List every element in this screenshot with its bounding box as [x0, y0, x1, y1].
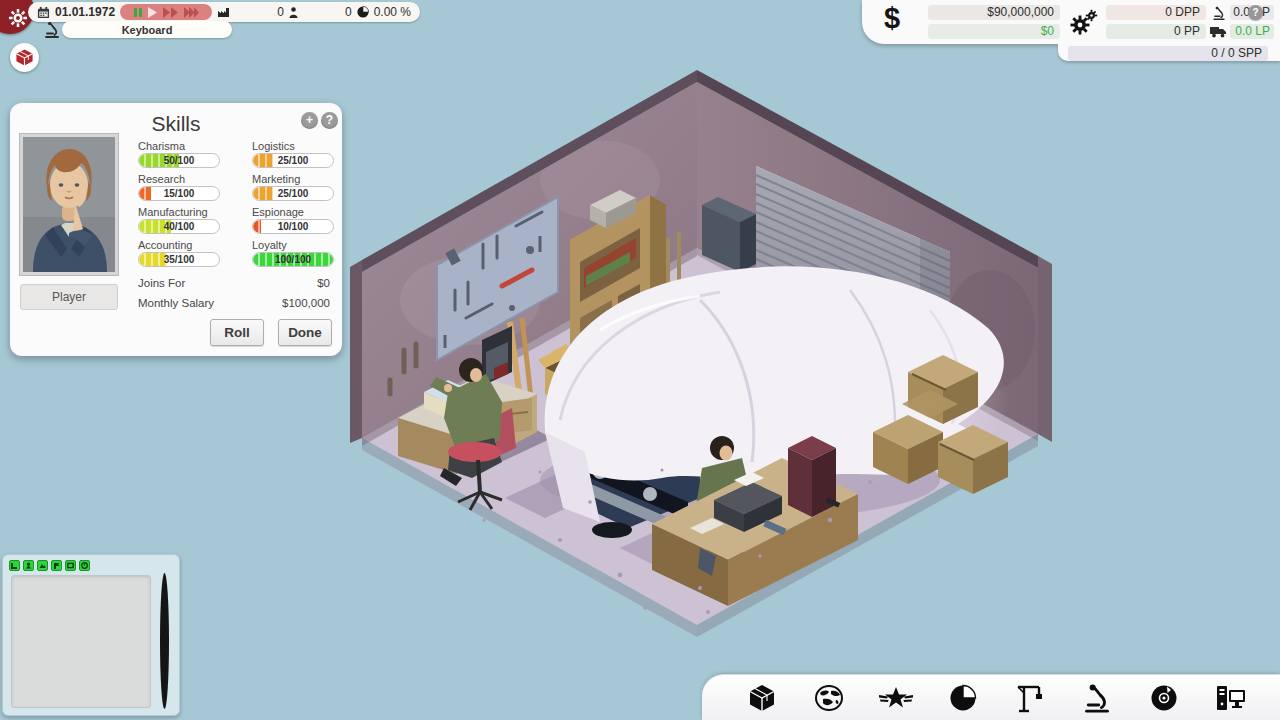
top-status-bar: 01.01.1972 0 0 0.00 % [28, 2, 420, 22]
skill-name-label: Manufacturing [138, 206, 242, 218]
products-box-icon [747, 683, 777, 713]
spp-panel: 0 / 0 SPP [1058, 44, 1280, 61]
skill-name-label: Research [138, 173, 242, 185]
toolbar-world-button[interactable] [812, 682, 846, 714]
skill-name-label: Marketing [252, 173, 356, 185]
skills-title: Skills [10, 112, 342, 136]
skill-espionage: Espionage10/100 [252, 206, 356, 234]
minimap-layer-button-4[interactable] [51, 560, 62, 571]
skill-value-text: 10/100 [253, 220, 333, 234]
skill-name-label: Logistics [252, 140, 356, 152]
skill-progress-bar: 15/100 [138, 186, 220, 201]
skill-progress-bar: 35/100 [138, 252, 220, 267]
skill-research: Research15/100 [138, 173, 242, 201]
pie-icon [357, 6, 369, 18]
portrait-art [23, 137, 115, 272]
hardware-computer-icon [1215, 684, 1247, 712]
skill-value-text: 40/100 [139, 220, 219, 234]
toolbar-software-button[interactable] [1147, 682, 1181, 714]
market-pie-icon [949, 684, 977, 712]
research-points-icon [1212, 6, 1226, 20]
minimap-layer-button-1[interactable] [9, 560, 20, 571]
skill-progress-bar: 40/100 [138, 219, 220, 234]
skill-marketing: Marketing25/100 [252, 173, 356, 201]
gear-icon [9, 9, 27, 27]
lp-field: 0.0 LP [1230, 24, 1274, 39]
microscope-icon [44, 21, 60, 38]
toolbar-market-button[interactable] [946, 682, 980, 714]
skill-value-text: 15/100 [139, 187, 219, 201]
bottom-toolbar [702, 674, 1280, 720]
person-icon [289, 7, 298, 18]
skill-loyalty: Loyalty100/100 [252, 239, 356, 267]
done-button[interactable]: Done [278, 319, 332, 346]
character-portrait [20, 134, 118, 275]
toolbar-construction-button[interactable] [1013, 682, 1047, 714]
help-button[interactable]: ? [1248, 5, 1263, 20]
joins-for-value: $0 [317, 277, 330, 289]
production-gears-icon[interactable] [1068, 9, 1098, 37]
minimap-panel [2, 554, 180, 716]
skills-help-button[interactable]: ? [321, 112, 338, 129]
red-crate-icon [15, 48, 34, 67]
current-research-label: Keyboard [122, 24, 173, 36]
toolbar-hardware-button[interactable] [1214, 682, 1248, 714]
toolbar-achievements-button[interactable] [879, 682, 913, 714]
skill-value-text: 50/100 [139, 154, 219, 168]
minimap-layer-button-5[interactable] [65, 560, 76, 571]
counter-population: 0 [345, 5, 352, 19]
salary-label: Monthly Salary [138, 297, 214, 309]
skill-progress-bar: 10/100 [252, 219, 334, 234]
skill-value-text: 25/100 [253, 154, 333, 168]
skill-manufacturing: Manufacturing40/100 [138, 206, 242, 234]
game-screen: 01.01.1972 0 0 0.00 % Keyboard [0, 0, 1280, 720]
minimap-viewport[interactable] [11, 575, 151, 708]
skill-accounting: Accounting35/100 [138, 239, 242, 267]
factory-icon [217, 6, 230, 18]
skill-charisma: Charisma50/100 [138, 140, 242, 168]
dpp-field: 0 DPP [1106, 5, 1206, 20]
skill-name-label: Charisma [138, 140, 242, 152]
joins-for-label: Joins For [138, 277, 185, 289]
pause-button[interactable] [134, 8, 142, 17]
skill-value-text: 100/100 [253, 253, 333, 267]
minimap-layer-button-6[interactable] [79, 560, 90, 571]
software-disc-icon [1150, 684, 1178, 712]
counter-industry: 0 [277, 5, 284, 19]
skills-dialog: Skills + ? [10, 103, 342, 356]
minimap-layer-button-2[interactable] [23, 560, 34, 571]
player-button[interactable]: Player [20, 284, 118, 310]
skill-value-text: 25/100 [253, 187, 333, 201]
speed-controls [120, 4, 212, 20]
skill-progress-bar: 25/100 [252, 186, 334, 201]
skill-progress-bar: 25/100 [252, 153, 334, 168]
calendar-icon [37, 6, 50, 19]
game-date: 01.01.1972 [55, 5, 115, 19]
skill-progress-bar: 100/100 [252, 252, 334, 267]
resources-panel: $ $90,000,000 $0 0 DPP 0 PP [862, 0, 1280, 44]
toolbar-research-button[interactable] [1080, 682, 1114, 714]
skills-grid: Charisma50/100Logistics25/100Research15/… [138, 140, 358, 267]
salary-value: $100,000 [282, 297, 330, 309]
skill-progress-bar: 50/100 [138, 153, 220, 168]
research-microscope-icon [1083, 683, 1111, 713]
skill-name-label: Loyalty [252, 239, 356, 251]
counter-market-share: 0.00 % [374, 5, 411, 19]
roll-button[interactable]: Roll [210, 319, 264, 346]
fastest-forward-button[interactable] [184, 7, 199, 18]
pp-field: 0 PP [1106, 24, 1206, 39]
spp-field: 0 / 0 SPP [1068, 46, 1268, 61]
money-delta-field: $0 [928, 24, 1060, 39]
minimap-scrollbar[interactable] [160, 573, 169, 709]
skill-logistics: Logistics25/100 [252, 140, 356, 168]
minimap-layer-button-3[interactable] [37, 560, 48, 571]
world-map-icon [813, 684, 845, 712]
toolbar-products-button[interactable] [745, 682, 779, 714]
skill-value-text: 35/100 [139, 253, 219, 267]
fast-forward-button[interactable] [163, 7, 178, 18]
current-research-pill[interactable]: Keyboard [62, 21, 232, 38]
construction-crane-icon [1015, 683, 1045, 713]
skill-name-label: Espionage [252, 206, 356, 218]
add-skill-button[interactable]: + [301, 112, 318, 129]
money-field: $90,000,000 [928, 5, 1060, 20]
skill-name-label: Accounting [138, 239, 242, 251]
logistics-truck-icon [1210, 26, 1227, 38]
play-button[interactable] [148, 7, 157, 18]
money-icon: $ [884, 2, 900, 35]
winged-star-icon [879, 685, 913, 711]
products-quick-button[interactable] [10, 43, 39, 72]
